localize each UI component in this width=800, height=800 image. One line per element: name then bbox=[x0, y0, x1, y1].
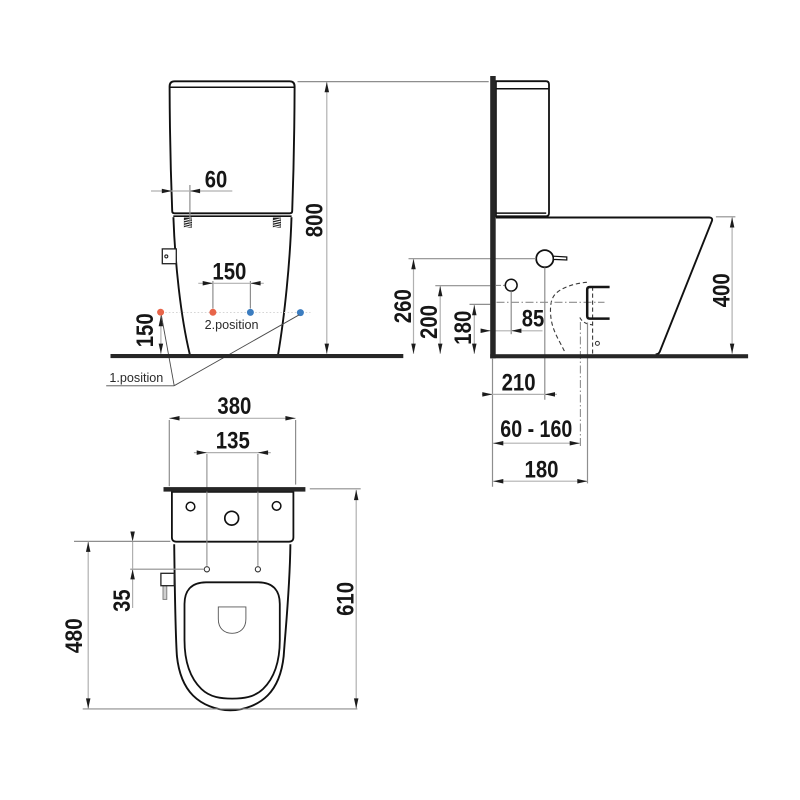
svg-text:480: 480 bbox=[61, 618, 88, 653]
svg-text:35: 35 bbox=[109, 589, 136, 612]
svg-text:150: 150 bbox=[132, 313, 159, 347]
svg-text:135: 135 bbox=[216, 428, 250, 455]
svg-text:610: 610 bbox=[332, 582, 359, 616]
svg-text:260: 260 bbox=[390, 289, 417, 323]
svg-text:200: 200 bbox=[416, 305, 443, 339]
svg-text:2.position: 2.position bbox=[205, 318, 259, 332]
svg-text:150: 150 bbox=[212, 258, 246, 285]
svg-text:85: 85 bbox=[522, 306, 545, 333]
svg-text:60: 60 bbox=[205, 166, 228, 193]
svg-text:180: 180 bbox=[525, 456, 559, 483]
svg-text:800: 800 bbox=[301, 203, 328, 237]
svg-text:180: 180 bbox=[450, 311, 477, 345]
svg-text:210: 210 bbox=[502, 370, 536, 397]
svg-text:1.position: 1.position bbox=[109, 371, 163, 385]
svg-text:380: 380 bbox=[217, 393, 251, 420]
svg-text:60 - 160: 60 - 160 bbox=[500, 416, 572, 443]
svg-text:400: 400 bbox=[709, 273, 736, 307]
